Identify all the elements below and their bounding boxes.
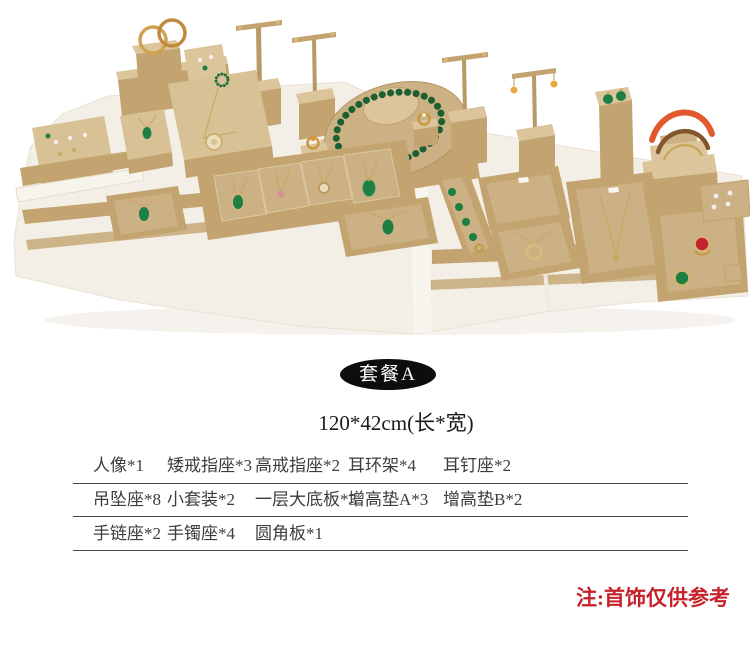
item-cell: 高戒指座*2 bbox=[255, 448, 340, 483]
yellow-dangle-earring bbox=[551, 81, 558, 88]
pink-pendant bbox=[278, 191, 285, 198]
jade-pendant bbox=[363, 180, 375, 196]
table-row: 人像*1 矮戒指座*3 高戒指座*2 耳环架*4 耳钉座*2 bbox=[73, 448, 688, 484]
product-photo bbox=[0, 0, 750, 358]
item-cell: 手镯座*4 bbox=[167, 517, 235, 550]
green-gem-ring bbox=[675, 271, 689, 285]
items-table: 人像*1 矮戒指座*3 高戒指座*2 耳环架*4 耳钉座*2 吊坠座*8 小套装… bbox=[73, 448, 688, 551]
jade-pendant bbox=[383, 220, 394, 235]
size-text: 120*42cm(长*宽) bbox=[0, 407, 750, 437]
set-badge: 套餐A bbox=[340, 359, 436, 390]
gold-pendant bbox=[613, 255, 620, 262]
table-row: 吊坠座*8 小套装*2 一层大底板*3 增高垫A*3 增高垫B*2 bbox=[73, 484, 688, 517]
item-cell: 耳钉座*2 bbox=[443, 448, 511, 483]
item-cell: 小套装*2 bbox=[167, 484, 235, 516]
stud-pad-right bbox=[700, 180, 750, 222]
jade-pendant bbox=[233, 195, 243, 209]
jewelry-display-scene bbox=[0, 0, 750, 358]
jade-pendant bbox=[143, 127, 152, 139]
item-cell: 矮戒指座*3 bbox=[167, 448, 252, 483]
item-cell: 人像*1 bbox=[93, 448, 144, 483]
item-cell: 增高垫A*3 bbox=[348, 484, 428, 516]
table-row: 手链座*2 手镯座*4 圆角板*1 bbox=[73, 517, 688, 551]
item-cell: 增高垫B*2 bbox=[443, 484, 522, 516]
jade-pendant bbox=[139, 207, 149, 221]
gold-pendant bbox=[319, 183, 329, 193]
item-cell: 耳环架*4 bbox=[348, 448, 416, 483]
reference-note: 注:首饰仅供参考 bbox=[576, 582, 730, 612]
item-cell: 一层大底板*3 bbox=[255, 484, 357, 516]
item-cell: 手链座*2 bbox=[93, 517, 161, 550]
product-page: 套餐A 120*42cm(长*宽) 人像*1 矮戒指座*3 高戒指座*2 耳环架… bbox=[0, 0, 750, 658]
yellow-dangle-earring bbox=[511, 87, 518, 94]
red-gem-ring bbox=[695, 237, 709, 251]
item-cell: 圆角板*1 bbox=[255, 517, 323, 550]
item-cell: 吊坠座*8 bbox=[93, 484, 161, 516]
